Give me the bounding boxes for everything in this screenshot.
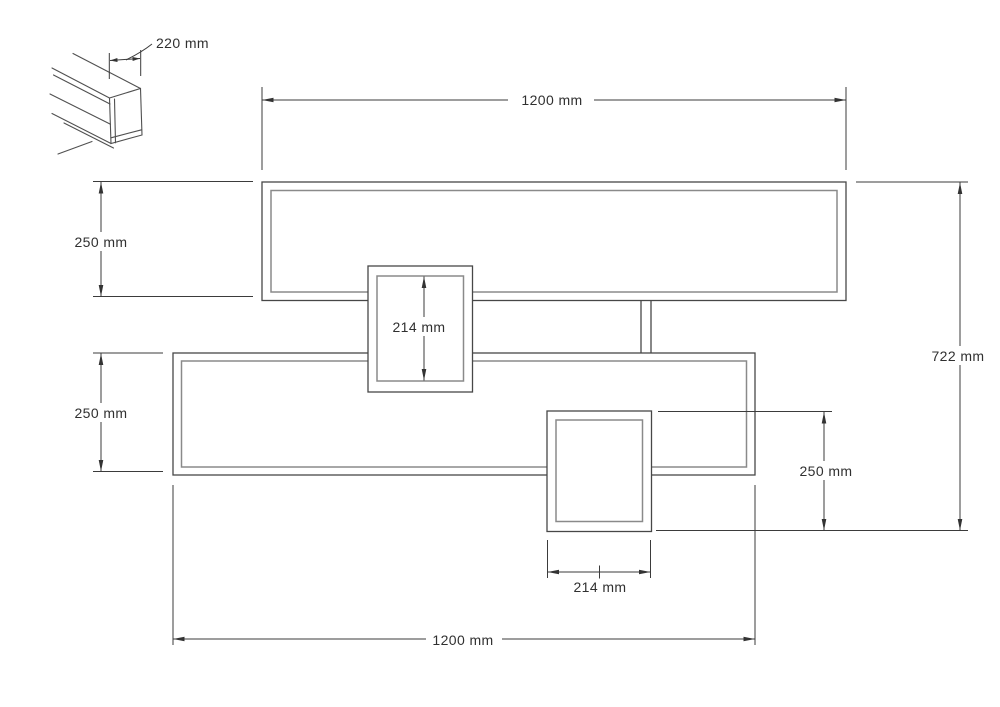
lower-box <box>547 411 652 532</box>
dimension-upper-shelf-height: 250 mm <box>72 182 253 297</box>
dimension-bottom-width: 1200 mm <box>173 485 755 648</box>
dim-label-bottom-width: 1200 mm <box>432 632 493 648</box>
top-shelf-outline <box>262 182 846 301</box>
top-shelf <box>262 182 846 301</box>
lower-box-outline <box>547 411 652 532</box>
shelf-connector <box>641 301 651 354</box>
dim-label-lower-shelf-height: 250 mm <box>75 405 128 421</box>
dim-label-upper-shelf-height: 250 mm <box>75 234 128 250</box>
top-shelf-inner-line <box>271 191 837 293</box>
drawing-canvas: 220 mm 1200 mm 250 mm 214 mm <box>0 0 1000 707</box>
dimension-lower-box-height: 250 mm <box>658 412 856 531</box>
leader-line <box>126 44 152 60</box>
beam-front-mid-line <box>50 94 111 124</box>
beam-top-near-edge <box>52 68 110 98</box>
dimension-lower-box-width: 214 mm <box>548 540 651 595</box>
beam-front-bottom-edge <box>52 114 111 144</box>
dim-label-top-width: 1200 mm <box>521 92 582 108</box>
dimension-top-width: 1200 mm <box>262 87 846 170</box>
dim-label-overall-height: 722 mm <box>932 348 985 364</box>
dim-label-profile-depth: 220 mm <box>156 35 209 51</box>
front-view <box>173 182 846 532</box>
dim-label-middle-box-height: 214 mm <box>393 319 446 335</box>
dimension-line <box>110 59 140 61</box>
profile-detail-sketch <box>50 54 142 155</box>
beam-bottom-board-edge <box>64 123 114 148</box>
dim-label-lower-box-width: 214 mm <box>574 579 627 595</box>
dimensions: 220 mm 1200 mm 250 mm 214 mm <box>72 35 988 648</box>
dimension-lower-shelf-height: 250 mm <box>72 353 163 472</box>
shelf-technical-drawing: 220 mm 1200 mm 250 mm 214 mm <box>0 0 1000 707</box>
beam-break-line <box>58 142 92 155</box>
dimension-profile-depth: 220 mm <box>109 35 209 79</box>
dim-label-lower-box-height: 250 mm <box>800 463 853 479</box>
